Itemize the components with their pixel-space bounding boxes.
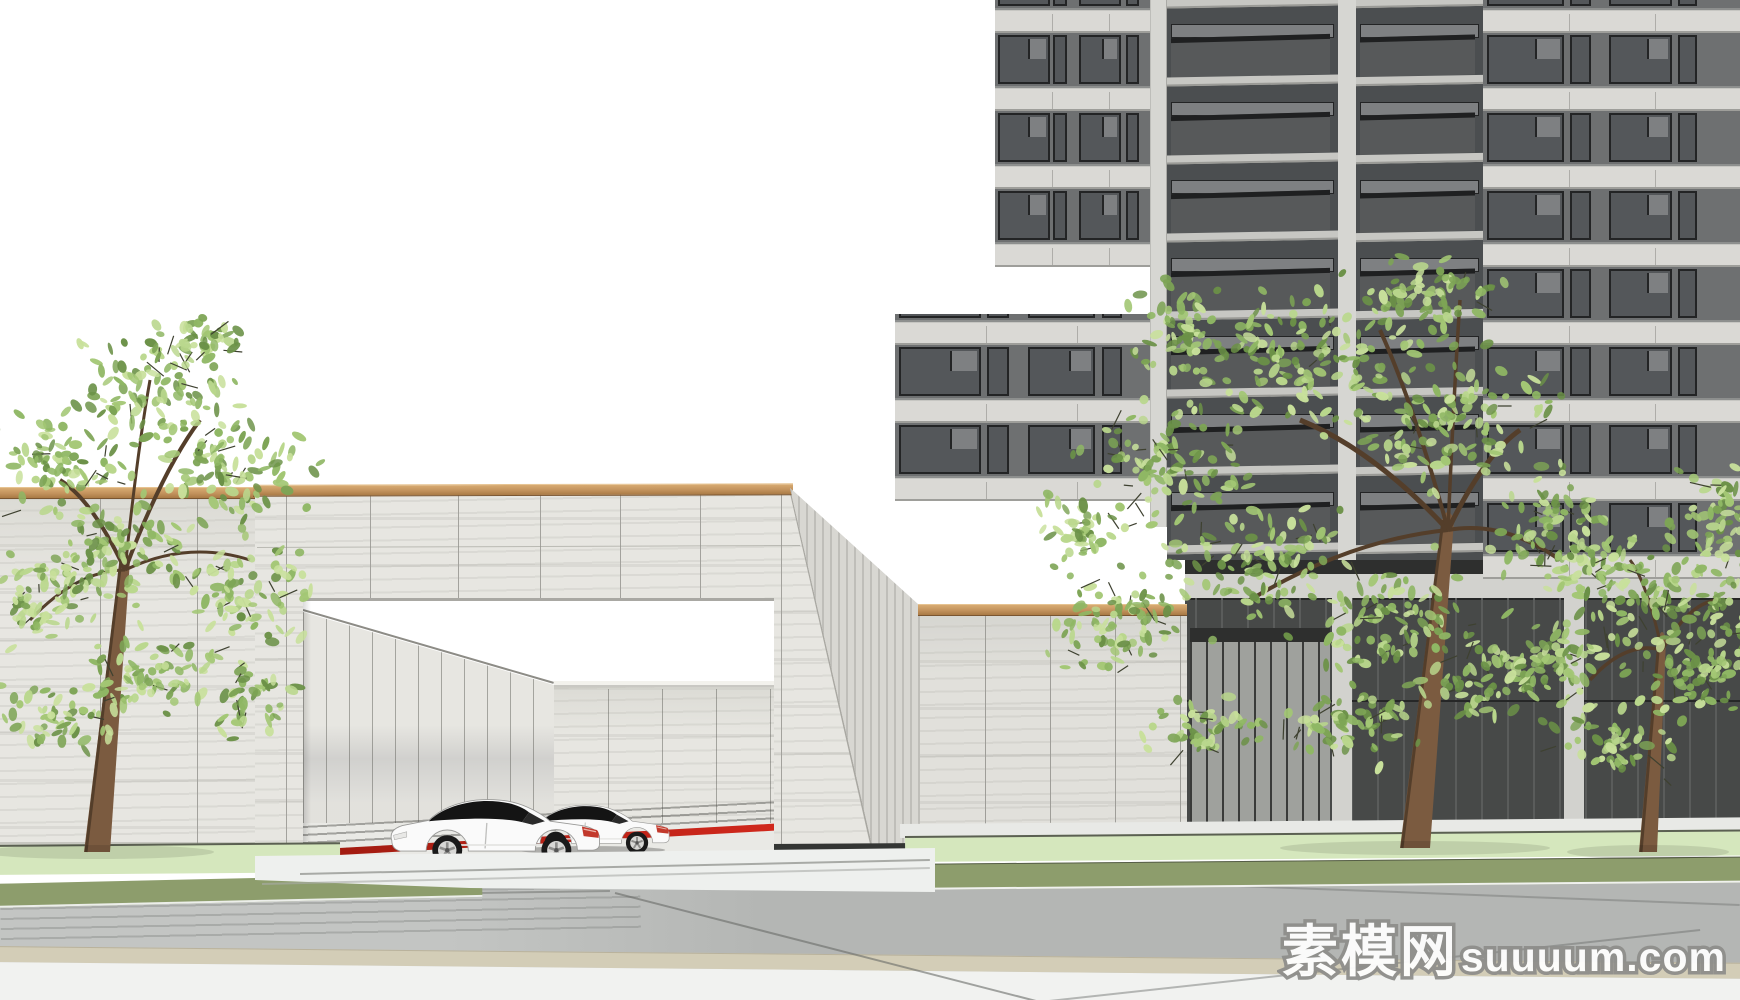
window — [1079, 191, 1121, 240]
window-subpane — [1647, 351, 1668, 371]
window-subpane — [1647, 507, 1668, 527]
panel-joint — [286, 490, 287, 862]
panel-joint — [1569, 404, 1570, 421]
panel-joint — [1115, 613, 1116, 845]
tower-balcony-section — [1167, 0, 1483, 560]
window — [1487, 35, 1564, 84]
window — [1570, 0, 1591, 6]
balcony-bay-pier — [1338, 0, 1356, 560]
balcony-glass-railing — [1171, 112, 1330, 156]
watermark-cn-text: 素模网素模网 — [1282, 924, 1459, 980]
window — [1570, 503, 1591, 552]
panel-joint — [1663, 598, 1665, 852]
watermark-latin-text: suuuum.comsuuuum.com — [1461, 937, 1726, 978]
panel-joint — [1689, 598, 1691, 852]
panel-joint — [1715, 598, 1717, 852]
balcony-glass-railing — [1360, 502, 1475, 545]
window-subpane — [1535, 507, 1560, 527]
window — [1079, 0, 1121, 6]
window — [998, 113, 1050, 162]
balcony-slab — [1167, 231, 1338, 243]
window-subpane — [1647, 195, 1668, 215]
window-subpane — [1028, 195, 1046, 215]
balcony-slab — [1167, 465, 1338, 477]
window — [1678, 113, 1697, 162]
window-subpane — [1535, 39, 1560, 59]
window-subpane — [1102, 195, 1117, 215]
panel-joint — [1637, 598, 1639, 852]
panel-joint — [1569, 482, 1570, 499]
panel-joint — [100, 497, 101, 845]
window-subpane — [1535, 117, 1560, 137]
panel-joint — [1655, 92, 1656, 109]
window — [1678, 425, 1697, 474]
window-band — [995, 0, 1167, 10]
panel-joint — [986, 482, 987, 499]
window-band — [995, 33, 1167, 88]
panel-joint — [1109, 92, 1110, 109]
slab-band — [1483, 244, 1740, 267]
tower-left-lower — [895, 314, 1167, 527]
panel-joint — [1655, 326, 1656, 343]
panel-joint — [1569, 326, 1570, 343]
slab-band — [995, 166, 1167, 189]
panel-joint — [1559, 598, 1561, 852]
window — [1570, 347, 1591, 396]
window — [1487, 191, 1564, 240]
window — [1487, 113, 1564, 162]
window — [998, 35, 1050, 84]
balcony-slab — [1356, 387, 1483, 398]
panel-joint — [1569, 14, 1570, 31]
far-wall-highlight — [554, 681, 774, 685]
window — [1678, 269, 1697, 318]
slab-band — [995, 244, 1167, 267]
slab-band — [1483, 10, 1740, 33]
wood-coping-lower-wall — [918, 604, 1187, 616]
balcony-slab — [1167, 75, 1338, 87]
window — [1609, 191, 1672, 240]
panel-joint — [1533, 598, 1535, 852]
slab-band — [1483, 88, 1740, 111]
window-subpane — [1647, 39, 1668, 59]
window — [1126, 113, 1139, 162]
tower-left-upper — [995, 0, 1167, 314]
window — [1570, 113, 1591, 162]
secondary-entrance-gate — [1190, 640, 1330, 845]
panel-joint — [1403, 598, 1405, 852]
slab-band — [995, 88, 1167, 111]
slab-band — [895, 400, 1167, 423]
panel-joint — [1109, 248, 1110, 265]
window — [1079, 35, 1121, 84]
window — [1028, 425, 1095, 474]
window — [1126, 0, 1139, 6]
window — [1678, 191, 1697, 240]
window — [1678, 0, 1697, 6]
window — [1053, 0, 1067, 6]
gate-horizontal-joint — [257, 545, 800, 548]
window-subpane — [1647, 117, 1668, 137]
balcony-slab — [1356, 75, 1483, 86]
lower-wall-right — [920, 613, 1187, 845]
window — [1609, 35, 1672, 84]
base-pier-1 — [1332, 574, 1352, 852]
balcony-slab — [1167, 387, 1338, 399]
window — [1570, 191, 1591, 240]
window — [1126, 191, 1139, 240]
panel-joint — [1052, 14, 1053, 31]
window-subpane — [950, 351, 977, 371]
window-subpane — [1069, 351, 1091, 371]
balcony-slab — [1356, 309, 1483, 320]
window — [1028, 314, 1095, 318]
balcony-glass-railing — [1360, 112, 1475, 155]
window-band — [1483, 189, 1740, 244]
wood-coping-gate — [253, 483, 793, 496]
watermark: 素模网素模网 suuuum.comsuuuum.com — [1282, 924, 1726, 980]
panel-joint — [1077, 482, 1078, 499]
window-band — [895, 423, 1167, 478]
window — [1487, 0, 1564, 6]
slab-band — [1483, 166, 1740, 189]
window — [1053, 113, 1067, 162]
architectural-rendering-scene: 素模网素模网 suuuum.comsuuuum.com — [0, 0, 1740, 1000]
panel-joint — [1077, 404, 1078, 421]
window — [1487, 269, 1564, 318]
panel-joint — [1481, 598, 1483, 852]
window-subpane — [1535, 429, 1560, 449]
perimeter-wall-left — [0, 497, 258, 848]
window — [1678, 347, 1697, 396]
window-subpane — [1102, 117, 1117, 137]
window-subpane — [1535, 273, 1560, 293]
window — [998, 191, 1050, 240]
panel-joint — [197, 497, 198, 845]
balcony-slab — [1356, 543, 1483, 554]
tower-pier-left — [1150, 0, 1167, 527]
window-subpane — [1535, 351, 1560, 371]
window — [1609, 503, 1672, 552]
balcony-slab — [1356, 153, 1483, 164]
window — [987, 425, 1009, 474]
panel-joint — [1569, 92, 1570, 109]
balcony-glass-railing — [1171, 502, 1330, 546]
window — [899, 347, 981, 396]
window — [1487, 425, 1564, 474]
balcony-glass-railing — [1171, 346, 1330, 390]
window-band — [995, 111, 1167, 166]
panel-joint — [1655, 14, 1656, 31]
slab-band — [895, 478, 1167, 501]
secondary-entrance-header — [1190, 628, 1330, 642]
window — [899, 425, 981, 474]
balcony-glass-railing — [1360, 190, 1475, 233]
panel-joint — [1052, 92, 1053, 109]
panel-joint — [1507, 598, 1509, 852]
window-band — [1483, 501, 1740, 556]
slab-band — [1483, 322, 1740, 345]
window — [1609, 425, 1672, 474]
window — [1609, 113, 1672, 162]
window-subpane — [1647, 273, 1668, 293]
panel-joint — [1569, 248, 1570, 265]
balcony-slab — [1167, 153, 1338, 165]
balcony-glass-railing — [1360, 424, 1475, 467]
panel-joint — [985, 613, 986, 845]
panel-joint — [1429, 598, 1431, 852]
window — [1102, 347, 1122, 396]
slab-band — [1483, 478, 1740, 501]
slab-band — [1483, 556, 1740, 579]
panel-joint — [1052, 248, 1053, 265]
window-band — [895, 345, 1167, 400]
window — [1487, 503, 1564, 552]
rendered-scene-canvas — [0, 0, 1740, 1000]
panel-joint — [1655, 404, 1656, 421]
window-subpane — [1069, 429, 1091, 449]
panel-joint — [1585, 598, 1587, 852]
window — [899, 314, 981, 318]
window — [1102, 314, 1122, 318]
window-subpane — [950, 429, 977, 449]
balcony-slab — [1356, 465, 1483, 476]
panel-joint — [1077, 326, 1078, 343]
window-subpane — [1028, 39, 1046, 59]
window-band — [1483, 0, 1740, 10]
balcony-glass-railing — [1360, 34, 1475, 77]
panel-joint — [1655, 560, 1656, 577]
window — [1028, 347, 1095, 396]
rear-wheel — [626, 832, 648, 854]
gate-opening-interior — [303, 598, 774, 868]
tower-right-section — [1483, 0, 1740, 622]
panel-joint — [986, 404, 987, 421]
panel-joint — [1655, 482, 1656, 499]
balcony-glass-railing — [1171, 268, 1330, 312]
window — [1570, 269, 1591, 318]
balcony-slab — [1167, 309, 1338, 321]
balcony-slab — [1356, 231, 1483, 242]
window — [1102, 425, 1122, 474]
slab-band — [995, 10, 1167, 33]
lintel-shadow — [303, 598, 774, 601]
slab-band — [895, 322, 1167, 345]
window-subpane — [1102, 39, 1117, 59]
window — [1053, 191, 1067, 240]
panel-joint — [1109, 170, 1110, 187]
panel-joint — [1611, 598, 1613, 852]
balcony-slab — [1356, 0, 1483, 8]
window — [987, 314, 1009, 318]
window — [1609, 347, 1672, 396]
balcony-glass-railing — [1171, 190, 1330, 234]
panel-joint — [1569, 560, 1570, 577]
window — [1609, 269, 1672, 318]
window-subpane — [1647, 429, 1668, 449]
panel-joint — [1377, 598, 1379, 852]
panel-joint — [1455, 598, 1457, 852]
slab-band — [1483, 400, 1740, 423]
panel-joint — [1109, 14, 1110, 31]
wood-coping-left-wall — [0, 487, 258, 499]
panel-joint — [986, 326, 987, 343]
window-band — [1483, 111, 1740, 166]
window-band — [995, 189, 1167, 244]
window — [1678, 503, 1697, 552]
window-band — [1483, 33, 1740, 88]
parked-cars — [303, 698, 774, 868]
window-band — [1483, 345, 1740, 400]
balcony-glass-railing — [1360, 346, 1475, 389]
window-band — [895, 314, 1167, 322]
panel-joint — [1655, 248, 1656, 265]
panel-joint — [1050, 613, 1051, 845]
window — [1053, 35, 1067, 84]
panel-joint — [1569, 170, 1570, 187]
window — [987, 347, 1009, 396]
balcony-glass-railing — [1171, 424, 1330, 468]
panel-joint — [1655, 170, 1656, 187]
window-band — [1483, 423, 1740, 478]
window-band — [1483, 267, 1740, 322]
window — [1609, 0, 1672, 6]
balcony-glass-railing — [1171, 34, 1330, 78]
balcony-slab — [1167, 543, 1338, 555]
panel-joint — [1052, 170, 1053, 187]
window — [1487, 347, 1564, 396]
window — [1126, 35, 1139, 84]
window-subpane — [1028, 117, 1046, 137]
balcony-glass-railing — [1360, 268, 1475, 311]
window — [1678, 35, 1697, 84]
window — [998, 0, 1050, 6]
window — [1079, 113, 1121, 162]
window — [1570, 35, 1591, 84]
balcony-slab — [1167, 0, 1338, 8]
panel-joint — [1180, 613, 1181, 845]
window-subpane — [1535, 195, 1560, 215]
window — [1570, 425, 1591, 474]
